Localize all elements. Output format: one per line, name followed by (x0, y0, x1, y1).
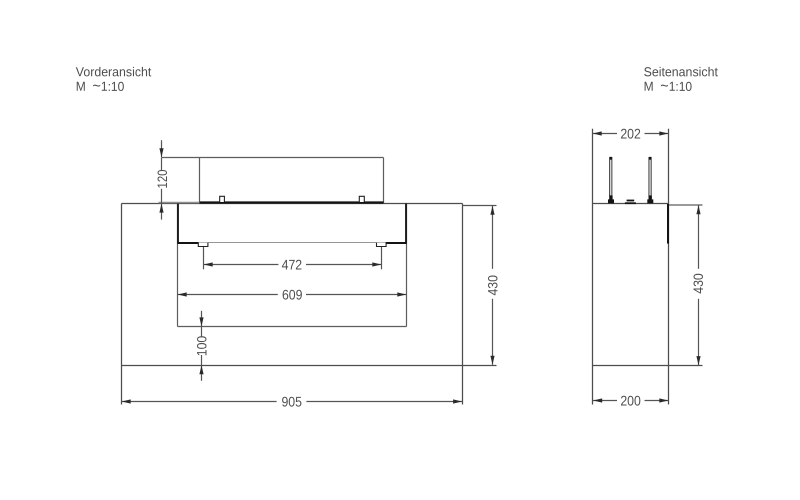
svg-text:200: 200 (620, 392, 641, 408)
svg-text:100: 100 (194, 336, 210, 357)
svg-text:609: 609 (282, 286, 303, 302)
svg-text:M ~1:10: M ~1:10 (76, 78, 125, 95)
svg-text:430: 430 (690, 273, 706, 294)
svg-text:472: 472 (282, 256, 303, 272)
svg-text:202: 202 (620, 125, 641, 141)
svg-text:Vorderansicht: Vorderansicht (76, 64, 152, 79)
svg-text:430: 430 (484, 275, 500, 296)
svg-text:905: 905 (281, 393, 302, 409)
svg-text:120: 120 (154, 169, 170, 188)
svg-text:M ~1:10: M ~1:10 (644, 78, 693, 95)
svg-text:Seitenansicht: Seitenansicht (644, 64, 719, 79)
